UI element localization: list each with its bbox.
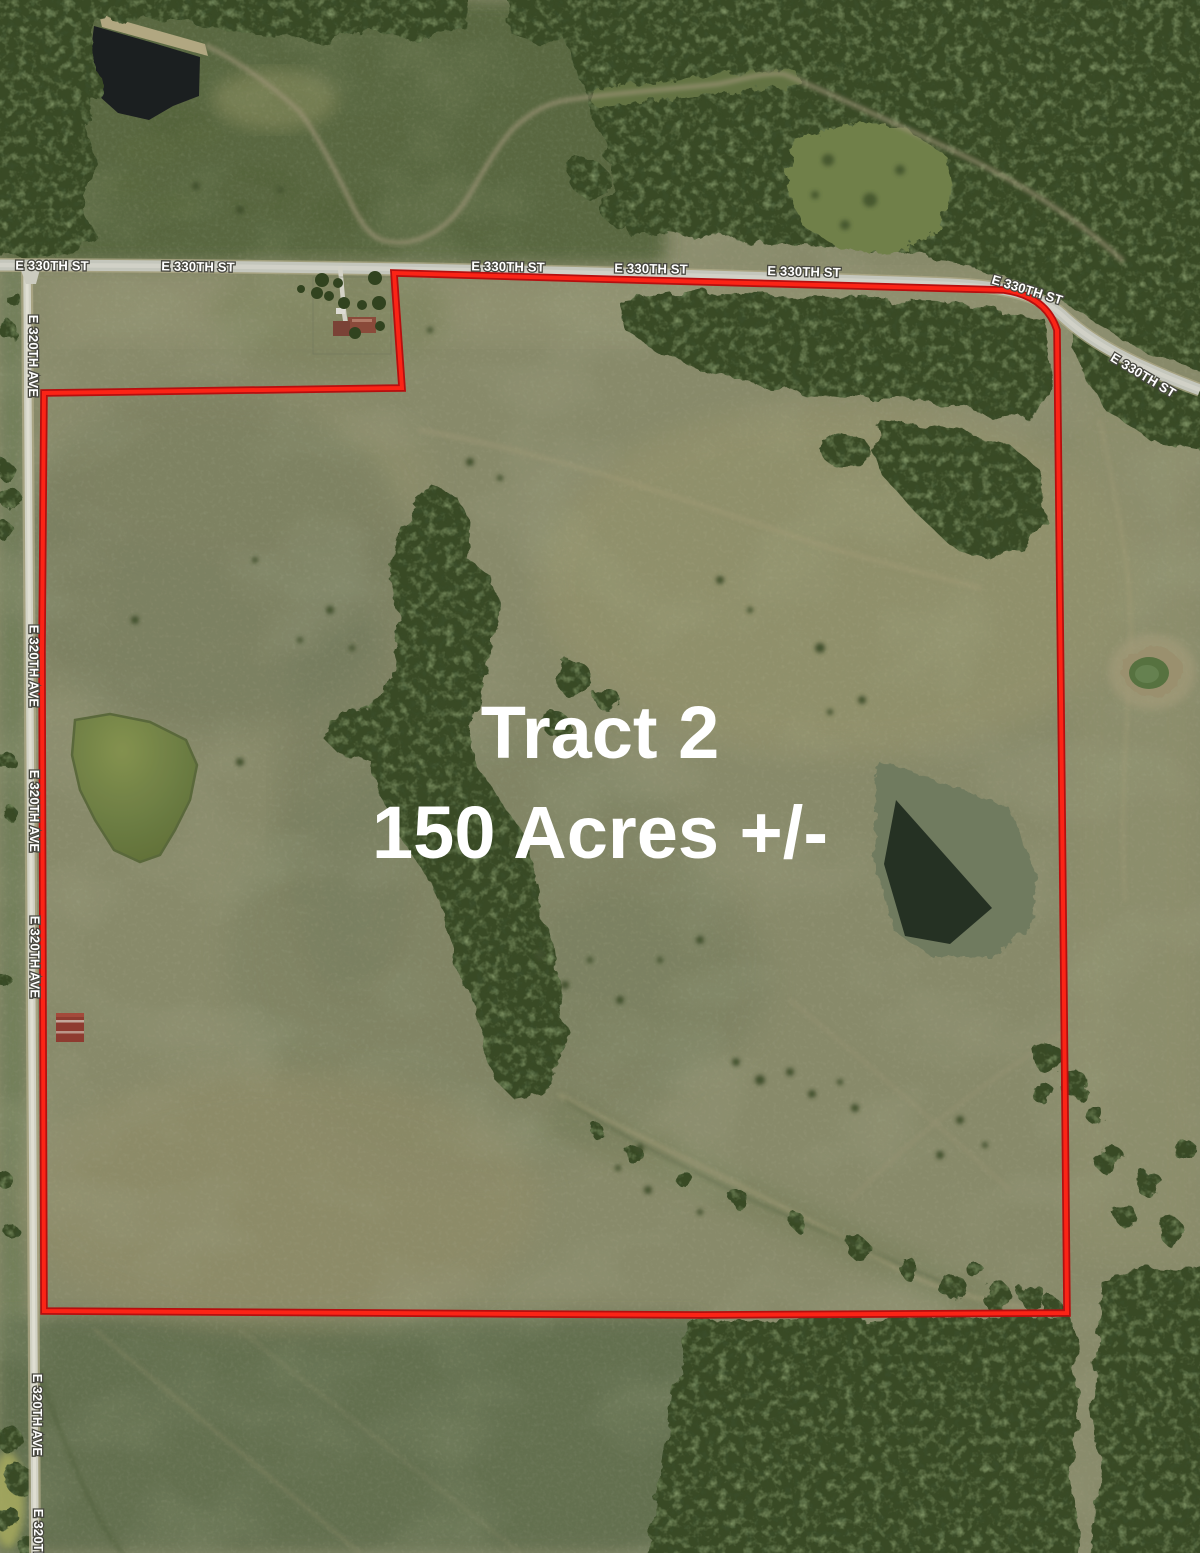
svg-text:E 320TH AVE: E 320TH AVE [26, 315, 41, 398]
svg-text:E 320TH AVE: E 320TH AVE [28, 916, 43, 999]
svg-text:E 330TH ST: E 330TH ST [471, 258, 545, 274]
svg-text:E 330TH ST: E 330TH ST [614, 260, 688, 276]
svg-text:E 320TH AVE: E 320TH AVE [31, 1509, 46, 1553]
svg-text:E 330TH ST: E 330TH ST [767, 263, 841, 280]
svg-text:E 330TH ST: E 330TH ST [161, 258, 235, 274]
svg-text:E 320TH AVE: E 320TH AVE [27, 770, 42, 853]
svg-text:E 320TH AVE: E 320TH AVE [30, 1374, 45, 1457]
svg-text:E 320TH AVE: E 320TH AVE [27, 625, 42, 708]
svg-text:Tract 2: Tract 2 [481, 691, 720, 774]
svg-text:150 Acres +/-: 150 Acres +/- [372, 791, 828, 874]
svg-text:E 330TH ST: E 330TH ST [15, 258, 89, 274]
